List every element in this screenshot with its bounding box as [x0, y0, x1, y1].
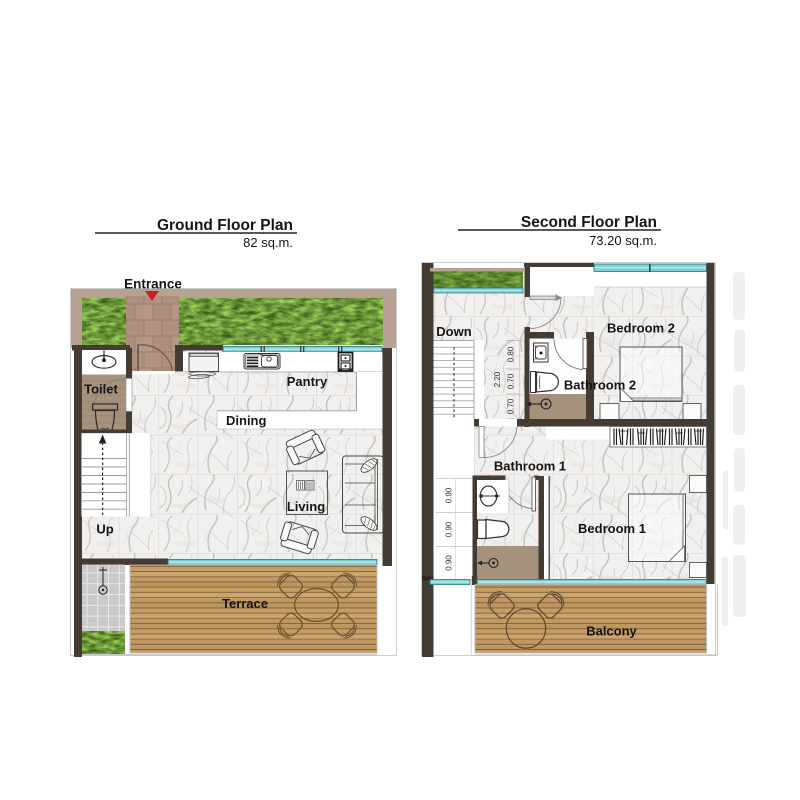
svg-text:Bedroom 2: Bedroom 2: [607, 321, 675, 336]
svg-text:0.70: 0.70: [507, 373, 516, 389]
svg-text:0.90: 0.90: [445, 555, 454, 571]
svg-text:Entrance: Entrance: [124, 277, 182, 292]
svg-text:Terrace: Terrace: [222, 596, 268, 611]
svg-text:0.90: 0.90: [445, 521, 454, 537]
svg-text:82 sq.m.: 82 sq.m.: [243, 235, 293, 250]
svg-text:0.70: 0.70: [507, 398, 516, 414]
svg-text:Bathroom 1: Bathroom 1: [494, 459, 566, 474]
svg-text:Toilet: Toilet: [84, 382, 118, 397]
svg-text:Bedroom 1: Bedroom 1: [578, 521, 646, 536]
svg-text:Pantry: Pantry: [287, 374, 328, 389]
svg-text:Second Floor Plan: Second Floor Plan: [521, 214, 657, 231]
svg-text:Down: Down: [436, 324, 471, 339]
svg-text:2.20: 2.20: [493, 371, 502, 387]
svg-text:Up: Up: [96, 522, 113, 537]
svg-text:Ground Floor Plan: Ground Floor Plan: [157, 217, 293, 234]
svg-text:0.90: 0.90: [445, 487, 454, 503]
svg-text:Balcony: Balcony: [586, 624, 637, 639]
svg-text:Living: Living: [287, 499, 325, 514]
svg-text:0.80: 0.80: [507, 346, 516, 362]
svg-text:Dining: Dining: [226, 413, 266, 428]
svg-text:73.20 sq.m.: 73.20 sq.m.: [589, 233, 657, 248]
svg-text:Bathroom 2: Bathroom 2: [564, 378, 636, 393]
